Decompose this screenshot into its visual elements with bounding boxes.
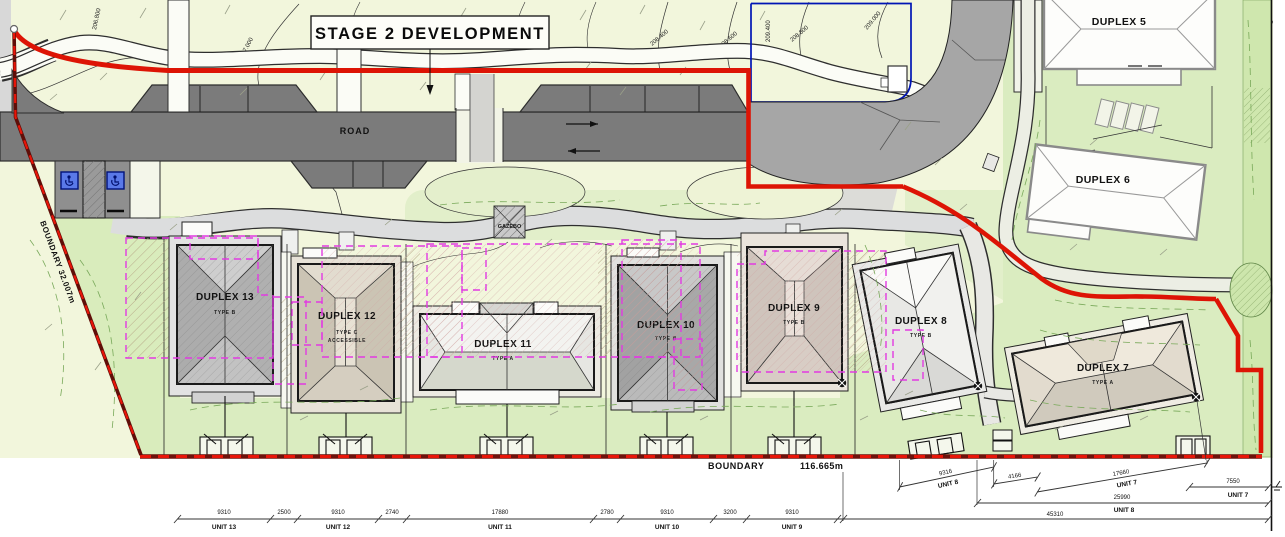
svg-text:UNIT 12: UNIT 12	[326, 524, 351, 531]
svg-text:2740: 2740	[385, 510, 399, 516]
svg-text:17880: 17880	[492, 510, 509, 516]
svg-text:9310: 9310	[660, 510, 674, 516]
svg-text:9310: 9310	[331, 510, 345, 516]
svg-text:UNIT 9: UNIT 9	[782, 524, 803, 531]
svg-text:STAGE 2 DEVELOPMENT: STAGE 2 DEVELOPMENT	[315, 25, 545, 43]
svg-text:9310: 9310	[217, 510, 231, 516]
svg-text:DUPLEX 7: DUPLEX 7	[1077, 363, 1129, 374]
svg-text:DUPLEX 6: DUPLEX 6	[1076, 174, 1131, 186]
svg-text:BOUNDARY: BOUNDARY	[708, 461, 764, 471]
svg-text:7550: 7550	[1226, 479, 1240, 485]
svg-text:ROAD: ROAD	[340, 126, 371, 136]
svg-text:UNIT 11: UNIT 11	[488, 524, 512, 531]
svg-text:209.400: 209.400	[766, 20, 772, 42]
svg-text:TYPE B: TYPE B	[214, 310, 236, 316]
svg-text:2780: 2780	[600, 510, 614, 516]
svg-text:UNIT 13: UNIT 13	[212, 524, 237, 531]
svg-text:GAZEBO: GAZEBO	[498, 224, 522, 230]
svg-text:UNIT 10: UNIT 10	[655, 524, 680, 531]
svg-text:2500: 2500	[277, 510, 291, 516]
svg-text:DUPLEX 5: DUPLEX 5	[1092, 16, 1147, 28]
svg-text:TYPE A: TYPE A	[1092, 380, 1113, 386]
svg-text:UNIT 8: UNIT 8	[1114, 507, 1135, 514]
svg-text:9310: 9310	[785, 510, 799, 516]
svg-text:45310: 45310	[1047, 512, 1064, 518]
svg-text:3200: 3200	[723, 510, 737, 516]
svg-text:25990: 25990	[1114, 495, 1131, 501]
svg-text:UNIT 7: UNIT 7	[1228, 492, 1249, 499]
svg-text:TYPE B: TYPE B	[910, 333, 932, 339]
svg-text:116.665m: 116.665m	[800, 461, 843, 471]
svg-text:DUPLEX 13: DUPLEX 13	[196, 292, 254, 303]
svg-text:DUPLEX 8: DUPLEX 8	[895, 316, 947, 327]
